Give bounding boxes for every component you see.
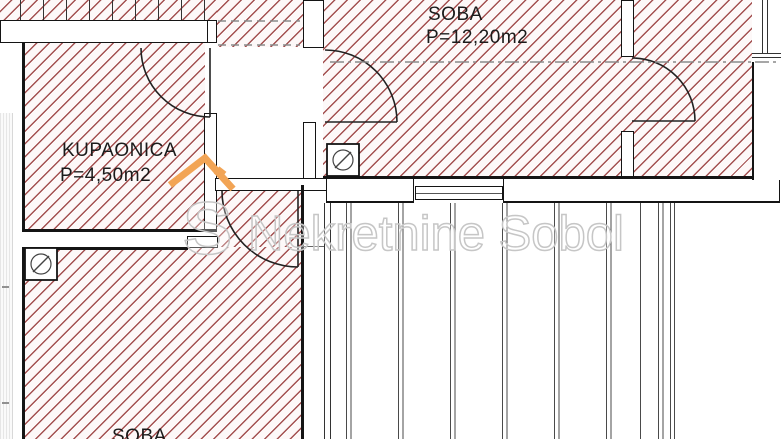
- line-kupaonica-left-wall: [22, 43, 25, 232]
- line-bottomroom-left-wall: [22, 247, 25, 439]
- room-label-soba-top: SOBA: [428, 5, 483, 26]
- room-label-soba-bottom: SOBA: [112, 427, 167, 439]
- line-gap-tick: [303, 246, 324, 247]
- wall-notch: [187, 236, 218, 248]
- line-right-window-a: [762, 0, 763, 54]
- wall-separator-upper: [303, 0, 324, 48]
- hatch-corridor-top: [217, 0, 303, 47]
- terrace-boards: [346, 203, 666, 439]
- left-strip-tick: [2, 286, 9, 288]
- line-right-sill-b: [752, 57, 781, 58]
- wall-kupaonica-right: [204, 113, 217, 232]
- left-strip-tick: [2, 402, 9, 404]
- line-soba-bottom-wall: [323, 176, 752, 179]
- floor-plan-canvas: KUPAONICA P=4,50m2 SOBA P=12,20m2 SOBA S…: [0, 0, 781, 439]
- line-bottomroom-top-wall: [22, 247, 188, 250]
- wall-top-band-inner-line: [207, 20, 208, 43]
- hatch-room-kupaonica: [25, 43, 205, 231]
- terrace-window: [415, 186, 503, 200]
- wall-soba-internal-upper: [621, 0, 634, 57]
- room-area-soba-top: P=12,20m2: [426, 28, 528, 49]
- line-terrace-left-a: [324, 203, 325, 439]
- hatch-room-soba-top: [323, 0, 752, 177]
- wall-separator-lower: [303, 122, 316, 179]
- terrace-window-mullion: [416, 193, 502, 194]
- hatch-top-wall-strip: [0, 0, 217, 22]
- wall-terrace-right-segment: [503, 178, 780, 203]
- left-edge-strip: [0, 113, 13, 439]
- wall-soba-internal-lower: [621, 131, 634, 178]
- terrace-board-extra-1: [640, 203, 641, 439]
- room-area-kupaonica: P=4,50m2: [60, 166, 151, 187]
- line-bottomroom-right-wall: [301, 185, 304, 439]
- terrace-board-extra-3: [674, 203, 675, 439]
- wall-top-band: [0, 20, 217, 43]
- terrace-board-extra-2: [670, 203, 671, 439]
- hatch-room-soba-bottom: [25, 247, 301, 439]
- wall-tick-marks: [20, 0, 216, 20]
- wall-terrace-left-segment: [326, 178, 414, 203]
- hatch-room-soba-bottom-upper: [215, 191, 301, 247]
- wall-hall-band: [215, 178, 330, 191]
- line-terrace-left-b: [330, 203, 331, 439]
- line-soba-right-wall-edge: [752, 62, 754, 180]
- line-right-window-b: [767, 0, 768, 54]
- room-label-kupaonica: KUPAONICA: [62, 141, 177, 162]
- line-right-sill-a: [752, 53, 781, 54]
- line-kupaonica-bottom-wall: [22, 229, 217, 232]
